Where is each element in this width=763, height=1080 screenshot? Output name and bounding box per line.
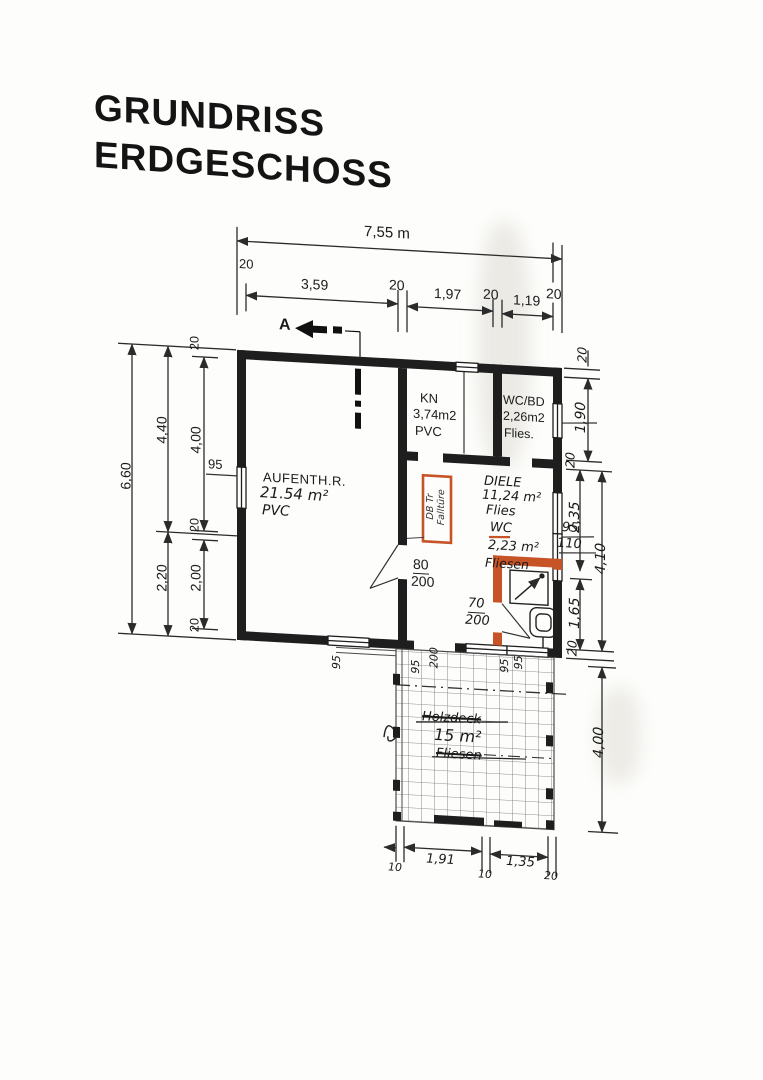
wall-right-seg2 — [553, 438, 562, 494]
room-kn-name: KN — [420, 391, 438, 406]
door-terrace-height: 200 — [429, 647, 441, 669]
wall-bottom-main-left — [237, 631, 328, 645]
dim-left-overall: 6,60 — [118, 462, 133, 490]
dim-top-overall: 7,55 m — [364, 224, 410, 242]
window-terrace-label-2: 95 — [513, 655, 525, 670]
room-wc-name: WC — [490, 521, 512, 536]
dim-bottom-w2: 1,35 — [506, 855, 535, 870]
door-main-height: 200 — [411, 574, 434, 590]
dim-top-t4: 20 — [546, 286, 562, 302]
dim-right-outer: 4,10 — [594, 543, 609, 575]
dim-right-wall-tick: 20 — [565, 640, 578, 657]
orange-wall-wc-left-lower — [493, 632, 502, 646]
floor-plan: 7,55 m 20 3,59 20 1,97 20 1,19 20 A 6,60… — [96, 205, 696, 939]
dim-bottom-t3: 20 — [544, 870, 558, 882]
door-wc-width: 70 — [468, 597, 485, 612]
hatch-box-label: DB Tr Falltüre — [426, 478, 448, 535]
dim-top-chain-1 — [246, 295, 398, 303]
dim-bottom-191 — [404, 847, 482, 851]
wall-diele-bottom-seg1 — [407, 640, 414, 649]
window-diele-right-95 — [553, 493, 562, 535]
room-kn-floor: PVC — [415, 424, 442, 439]
dim-top-chain-2 — [407, 306, 493, 311]
section-label: A — [279, 317, 291, 334]
wc-fixtures — [510, 570, 556, 649]
dim-top-t1: 20 — [239, 257, 253, 271]
dim-left-window: 95 — [208, 457, 222, 471]
orange-mark-right-wall — [553, 559, 562, 571]
dim-left-ext-bottom — [118, 633, 236, 640]
left-window-leader — [206, 474, 237, 476]
door-swing-main-2 — [370, 576, 398, 590]
door-terrace-width: 95 — [410, 659, 422, 674]
window-left-wall — [237, 467, 246, 509]
wall-main-diele-lower — [398, 579, 407, 650]
wall-diele-bottom-seg3 — [548, 648, 562, 658]
dim-left-t2: 20 — [188, 518, 201, 533]
dim-top-w3: 1,19 — [513, 292, 540, 308]
window-kn-top — [456, 362, 478, 372]
wall-kn-diele-seg1 — [407, 451, 418, 461]
hatch-box-leader — [407, 536, 424, 539]
dim-left-i1: 4,00 — [188, 426, 203, 454]
terrace-floor: Fliesen — [436, 747, 482, 763]
room-wcbd-name: WC/BD — [503, 394, 545, 409]
wall-right-seg1 — [553, 368, 562, 405]
dim-left-t3: 20 — [188, 618, 201, 633]
dim-right-t2: 20 — [563, 452, 576, 469]
room-wcbd-floor: Flies. — [504, 427, 534, 442]
wall-main-diele-upper — [398, 368, 407, 546]
room-kn-area: 3,74m2 — [413, 407, 456, 423]
room-diele-floor: Flies — [486, 504, 515, 519]
dim-top-t2: 20 — [389, 277, 405, 293]
room-main-floor: PVC — [262, 503, 290, 519]
wall-left-upper — [237, 350, 246, 468]
dim-left-mid-2: 2,20 — [154, 564, 169, 592]
page-title: GRUNDRISS ERDGESCHOSS — [94, 84, 393, 200]
shower-icon — [510, 570, 548, 605]
dim-right-i2: 1,65 — [568, 597, 583, 629]
window-main-bottom-label: 95 — [331, 655, 343, 670]
terrace-step-edge-2 — [336, 652, 396, 655]
section-dash-1 — [355, 368, 361, 394]
terrace-crossed-label: Holzdeck — [422, 710, 481, 727]
wall-right-seg3 — [553, 581, 562, 659]
dim-left-t1: 20 — [188, 336, 201, 351]
dim-left-i2: 2,00 — [188, 564, 203, 592]
section-dash-dot — [355, 400, 361, 406]
wall-kn-wcbd — [493, 364, 502, 457]
window-terrace-label-1: 95 — [499, 658, 511, 673]
dim-top-w1: 3,59 — [301, 276, 328, 292]
dim-right-t1: 20 — [575, 346, 588, 363]
dim-right-win110: 110 — [557, 537, 582, 552]
dim-bottom-w1: 1,91 — [426, 852, 455, 867]
dim-bottom-t1: 10 — [388, 861, 402, 873]
section-arrow — [295, 319, 361, 429]
wall-top-left-seg — [237, 350, 456, 371]
dim-bottom-t2: 10 — [478, 868, 492, 880]
wall-diele-bottom-seg2 — [455, 643, 466, 653]
room-wcbd-area: 2,26m2 — [503, 410, 545, 425]
door-wc-height: 200 — [465, 614, 490, 629]
terrace-area: 15 m² — [434, 727, 481, 746]
window-wcbd-right — [553, 404, 562, 439]
wall-kn-diele-seg3 — [532, 458, 553, 468]
room-wc-floor: Fliesen — [485, 556, 529, 572]
toilet-icon — [530, 607, 556, 648]
dim-right-190: 1,90 — [574, 401, 589, 433]
dim-top-w2: 1,97 — [434, 286, 461, 302]
dim-right-terrace: 4,00 — [592, 727, 607, 759]
hatch-line-2: Falltüre — [437, 479, 448, 536]
section-dash-2 — [355, 412, 361, 428]
room-wc-area: 2,23 m² — [488, 539, 539, 555]
dim-left-mid-1: 4,40 — [154, 416, 169, 444]
window-main-bottom — [328, 636, 369, 647]
dim-top-overall-line — [237, 241, 562, 259]
dim-right-win95: 95 — [562, 521, 579, 536]
dim-top-chain-3 — [502, 314, 553, 317]
dim-left-ext-top — [118, 343, 236, 350]
wall-left-lower — [237, 508, 246, 641]
door-main-width: 80 — [413, 557, 429, 573]
dim-top-t3: 20 — [483, 287, 499, 303]
wall-top-right-seg — [478, 363, 562, 377]
